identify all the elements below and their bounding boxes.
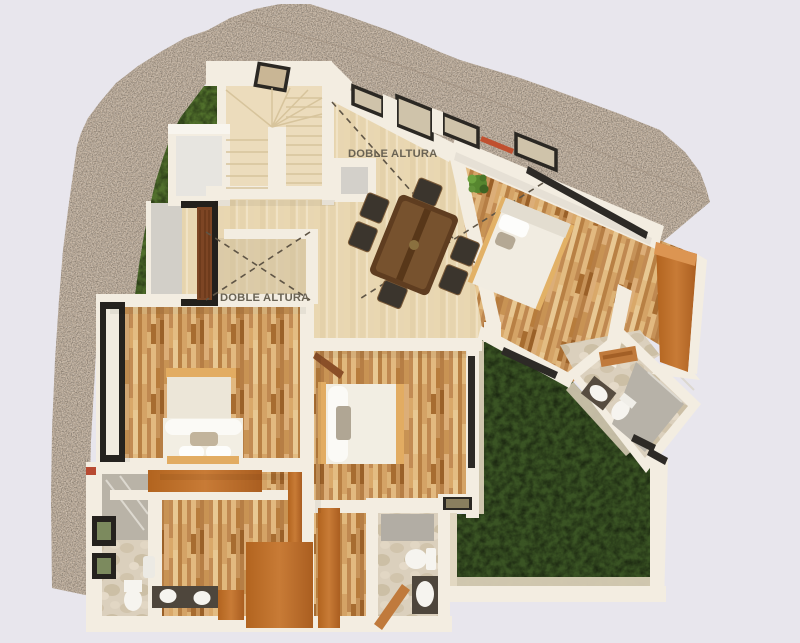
svg-text:DOBLE ALTURA: DOBLE ALTURA [220,292,309,304]
svg-text:DOBLE ALTURA: DOBLE ALTURA [348,148,437,160]
